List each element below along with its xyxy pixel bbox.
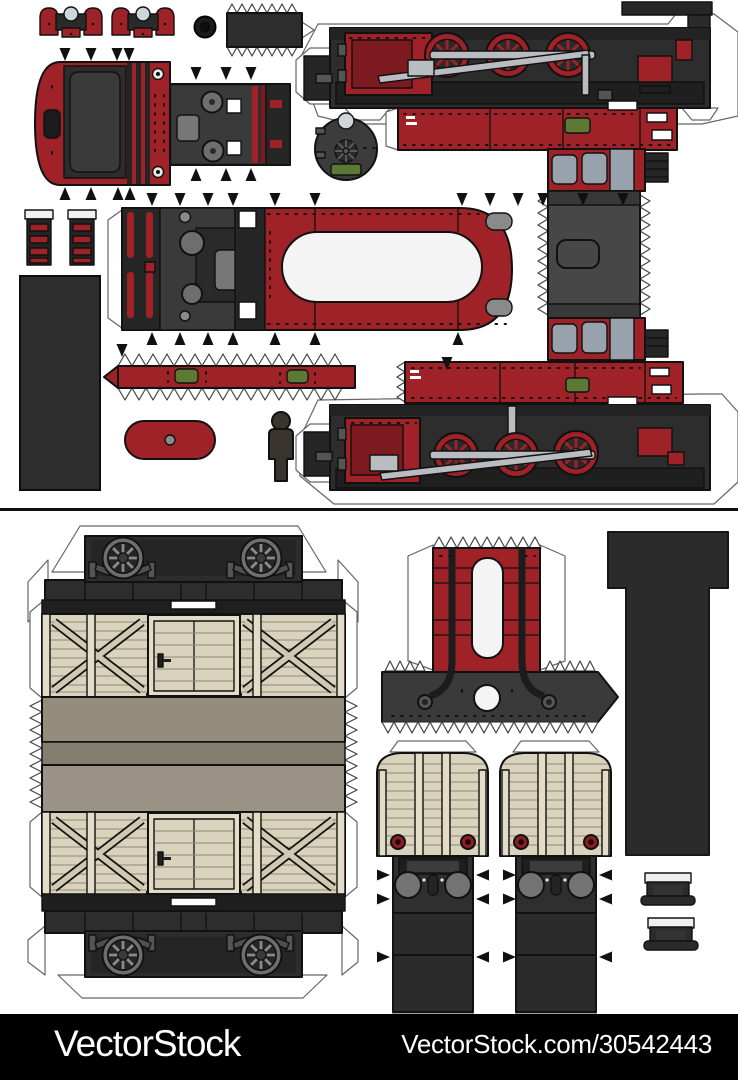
- wagon-end-left: [377, 753, 488, 1012]
- axlebox-part-upper: [641, 873, 695, 905]
- wagon-side-upper: [42, 614, 345, 697]
- glue-tab-plate: [227, 4, 302, 56]
- coal-bunker-panel: [20, 276, 100, 490]
- wagon-roof-half-1: [42, 697, 345, 742]
- wagon-roof-half-2: [42, 765, 345, 812]
- boiler-band-left: [397, 362, 683, 406]
- cab-step-ladder-1: [25, 210, 53, 265]
- running-board-strip: [104, 354, 355, 400]
- boiler-top-panel: [170, 84, 290, 165]
- wagon-side-lower: [42, 812, 345, 895]
- wagon-end-right: [500, 753, 611, 1012]
- watermark-bar: VectorStock VectorStock.com/30542443: [0, 1014, 738, 1080]
- builder-plate: [566, 378, 589, 392]
- locomotive-side-view-left: [304, 405, 710, 490]
- paper-model-sheet: VectorStock VectorStock.com/30542443: [0, 0, 738, 1080]
- loco-number-marking: [410, 370, 419, 373]
- smokebox-door-wrap: [35, 62, 170, 185]
- locomotive-side-view-right: [304, 2, 712, 108]
- chimney-cap-disc: [195, 17, 216, 38]
- boiler-band-right: [398, 101, 677, 150]
- vectorstock-logo-text: VectorStock: [54, 1023, 240, 1065]
- firebox-opening: [472, 558, 503, 658]
- wagon-underframe-bottom: [45, 911, 342, 977]
- front-buffer-cluster-left: [40, 7, 102, 37]
- roof-hatch: [557, 240, 599, 268]
- scale-figure: [269, 412, 293, 481]
- roof-capsule-vent: [165, 435, 175, 445]
- sheet-divider-line: [0, 508, 738, 511]
- model-sheet-drawing: [0, 0, 738, 1080]
- wagon-underframe-top: [45, 536, 342, 602]
- cab-front-and-roof-strip: [538, 149, 668, 360]
- boiler-opening: [282, 232, 482, 302]
- axlebox-part-lower: [644, 918, 698, 950]
- wagon-roof-ridge: [42, 742, 345, 765]
- underframe-floor-t-piece: [608, 532, 728, 855]
- loco-number-marking: [406, 116, 415, 119]
- builder-plate: [565, 118, 590, 133]
- vectorstock-url-text: VectorStock.com/30542443: [401, 1029, 712, 1060]
- boiler-barrel-wrap: [122, 208, 512, 330]
- cab-step-ladder-2: [68, 210, 96, 265]
- front-buffer-cluster-right: [112, 7, 174, 37]
- wagon-side-and-roof-wrap: [30, 536, 357, 977]
